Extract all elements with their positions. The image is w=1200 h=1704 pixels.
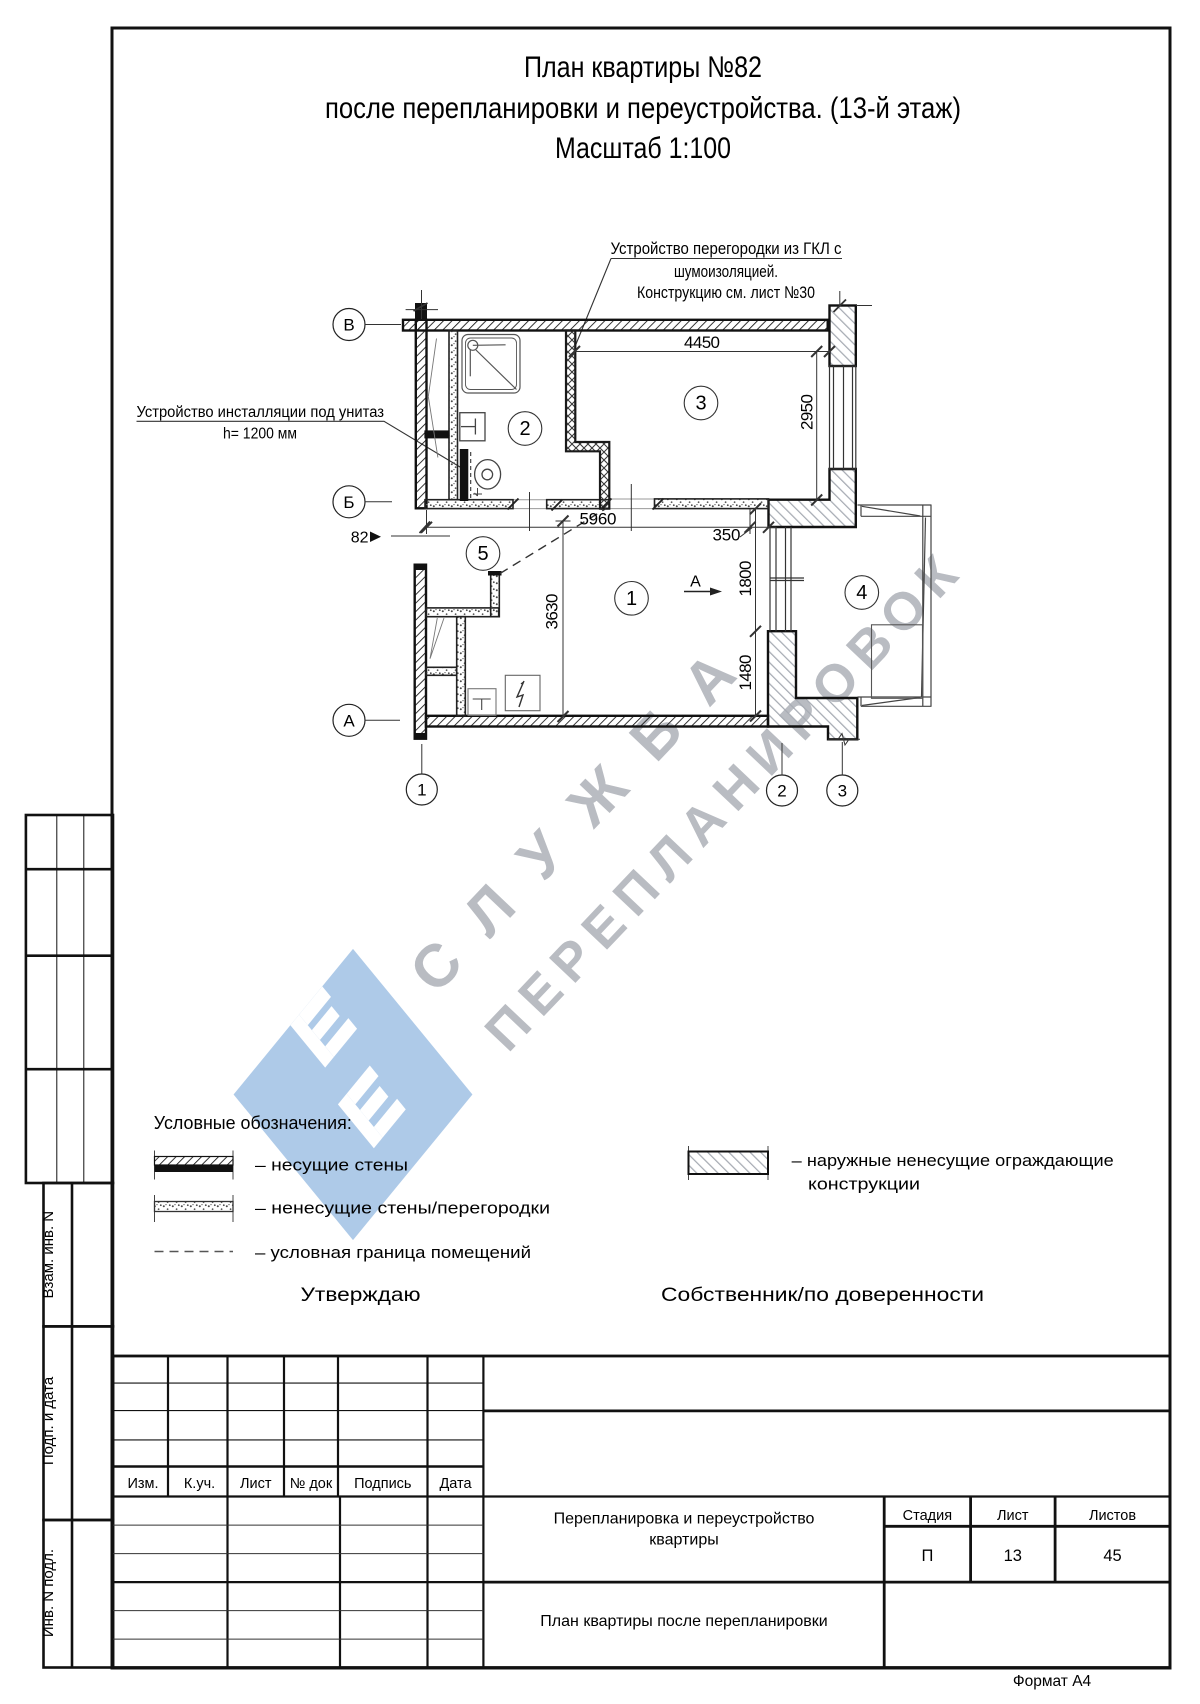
svg-text:– условная граница помещений: – условная граница помещений [255, 1243, 531, 1262]
svg-text:конструкции: конструкции [808, 1175, 920, 1194]
svg-text:350: 350 [713, 526, 741, 545]
svg-text:Подпись: Подпись [354, 1476, 411, 1492]
svg-text:Условные обозначения:: Условные обозначения: [154, 1112, 352, 1133]
svg-text:4450: 4450 [684, 333, 720, 352]
svg-text:В: В [343, 316, 354, 335]
svg-text:2: 2 [777, 782, 786, 801]
svg-text:Б: Б [343, 493, 354, 512]
svg-text:1480: 1480 [736, 655, 755, 691]
svg-text:Изм.: Изм. [127, 1476, 158, 1492]
svg-text:3: 3 [838, 782, 847, 801]
svg-text:Взам. инв. N: Взам. инв. N [40, 1211, 57, 1299]
svg-text:П: П [921, 1547, 933, 1565]
svg-text:Листов: Листов [1089, 1508, 1136, 1524]
svg-text:План квартиры после перепланир: План квартиры после перепланировки [540, 1613, 827, 1630]
svg-text:Конструкцию см. лист №30: Конструкцию см. лист №30 [637, 283, 815, 302]
svg-text:квартиры: квартиры [649, 1532, 718, 1549]
svg-text:шумоизоляцией.: шумоизоляцией. [674, 262, 778, 281]
svg-text:2: 2 [519, 418, 530, 440]
svg-text:1: 1 [626, 588, 637, 610]
svg-text:Перепланировка и переустройств: Перепланировка и переустройство [554, 1511, 815, 1528]
svg-text:после перепланировки и переуст: после перепланировки и переустройства. (… [325, 92, 961, 125]
svg-text:h= 1200 мм: h= 1200 мм [223, 426, 297, 443]
svg-text:Устройство перегородки из ГКЛ: Устройство перегородки из ГКЛ с [611, 239, 842, 258]
svg-text:1: 1 [417, 781, 426, 800]
svg-text:13: 13 [1004, 1547, 1022, 1565]
svg-text:3630: 3630 [543, 594, 562, 630]
svg-text:82: 82 [351, 530, 369, 547]
svg-text:А: А [690, 574, 701, 591]
svg-text:№ док: № док [290, 1476, 333, 1492]
svg-text:5960: 5960 [580, 510, 617, 529]
svg-text:Масштаб 1:100: Масштаб 1:100 [555, 132, 731, 165]
svg-text:К.уч.: К.уч. [184, 1476, 215, 1492]
svg-text:Подп. и дата: Подп. и дата [40, 1376, 57, 1465]
svg-text:45: 45 [1103, 1547, 1121, 1565]
svg-text:План квартиры №82: План квартиры №82 [524, 51, 762, 84]
svg-text:Лист: Лист [240, 1476, 272, 1492]
svg-text:Инв. N подл.: Инв. N подл. [40, 1549, 57, 1637]
svg-text:Устройство инсталляции под уни: Устройство инсталляции под унитаз [137, 404, 385, 421]
svg-text:3: 3 [695, 393, 706, 415]
svg-text:Собственник/по доверенности: Собственник/по доверенности [661, 1284, 984, 1306]
svg-text:5: 5 [477, 543, 488, 565]
svg-text:Стадия: Стадия [903, 1508, 952, 1524]
svg-text:Дата: Дата [439, 1476, 472, 1492]
svg-text:– ненесущие стены/перегородки: – ненесущие стены/перегородки [255, 1199, 550, 1218]
svg-text:4: 4 [856, 582, 867, 604]
svg-text:1800: 1800 [736, 561, 755, 597]
svg-text:– наружные ненесущие ограждающ: – наружные ненесущие ограждающие [792, 1151, 1114, 1170]
svg-text:2950: 2950 [798, 394, 817, 430]
svg-text:Формат А4: Формат А4 [1013, 1673, 1092, 1690]
svg-text:А: А [343, 711, 355, 730]
svg-text:Утверждаю: Утверждаю [301, 1284, 421, 1306]
svg-text:– несущие стены: – несущие стены [255, 1156, 408, 1175]
svg-text:Лист: Лист [997, 1508, 1029, 1524]
